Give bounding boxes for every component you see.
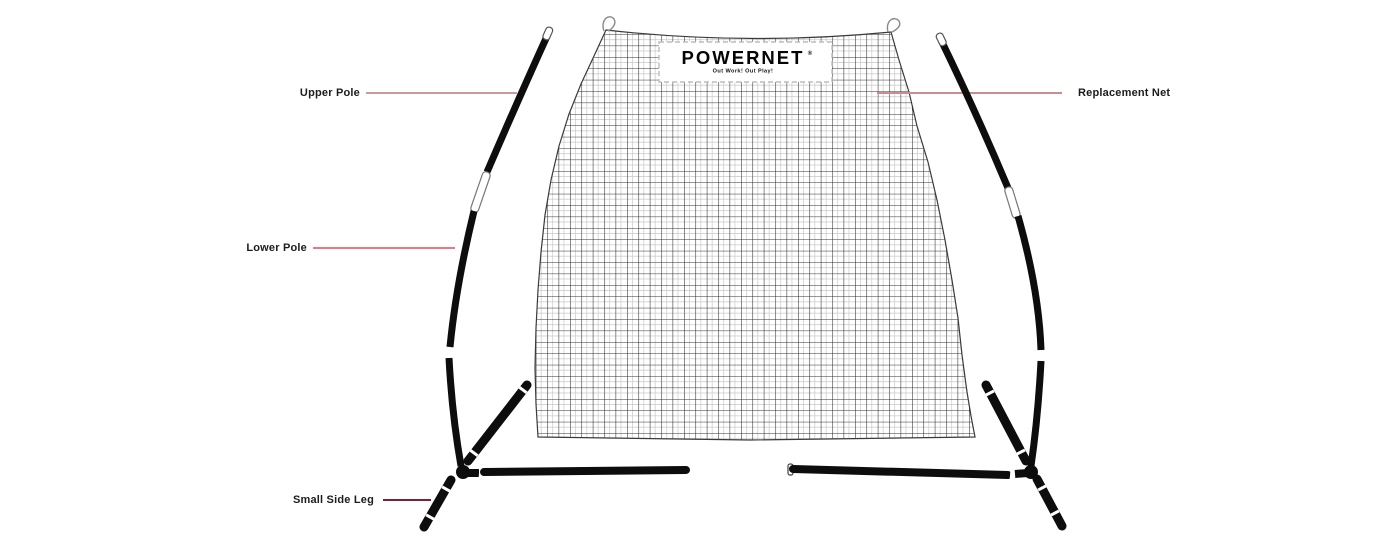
right-lower-pole [1018, 216, 1041, 350]
right-base-bar-joint-gap [1011, 469, 1012, 482]
right-small-side-leg [1037, 479, 1062, 526]
tagline-text: Out Work! Out Play! [713, 69, 774, 75]
right-pole-tip-cap [935, 32, 947, 47]
right-pole-connector [1004, 186, 1021, 219]
left-lower-pole [450, 211, 474, 347]
left-diagonal-brace [468, 385, 527, 461]
right-base-bar [793, 469, 1008, 475]
net-mesh-dark [528, 22, 980, 446]
right-diagonal-brace [986, 385, 1026, 461]
left-pole-tip-cap [542, 26, 554, 41]
left-pole-connector [470, 171, 491, 213]
right-pole-base-section [1031, 361, 1041, 466]
registered-mark: ® [808, 50, 813, 57]
brand-text: POWERNET [682, 47, 805, 68]
product-parts-diagram: POWERNET ® Out Work! Out Play! [0, 0, 1400, 560]
left-pole-base-section [449, 358, 461, 466]
net-corner-tie-left [603, 17, 615, 31]
small-side-leg-label: Small Side Leg [293, 493, 374, 507]
net-diagram-graphic: POWERNET ® Out Work! Out Play! [0, 0, 1400, 560]
left-small-side-leg [424, 480, 451, 527]
left-base-bar [484, 470, 686, 472]
logo-banner: POWERNET ® Out Work! Out Play! [659, 42, 832, 82]
right-base-bar-stub [1015, 473, 1028, 474]
net-corner-tie-right [887, 19, 899, 32]
lower-pole-label: Lower Pole [246, 241, 307, 255]
replacement-net-label: Replacement Net [1078, 86, 1170, 100]
upper-pole-label: Upper Pole [300, 86, 360, 100]
left-upper-pole [487, 34, 548, 172]
right-upper-pole [941, 40, 1008, 188]
